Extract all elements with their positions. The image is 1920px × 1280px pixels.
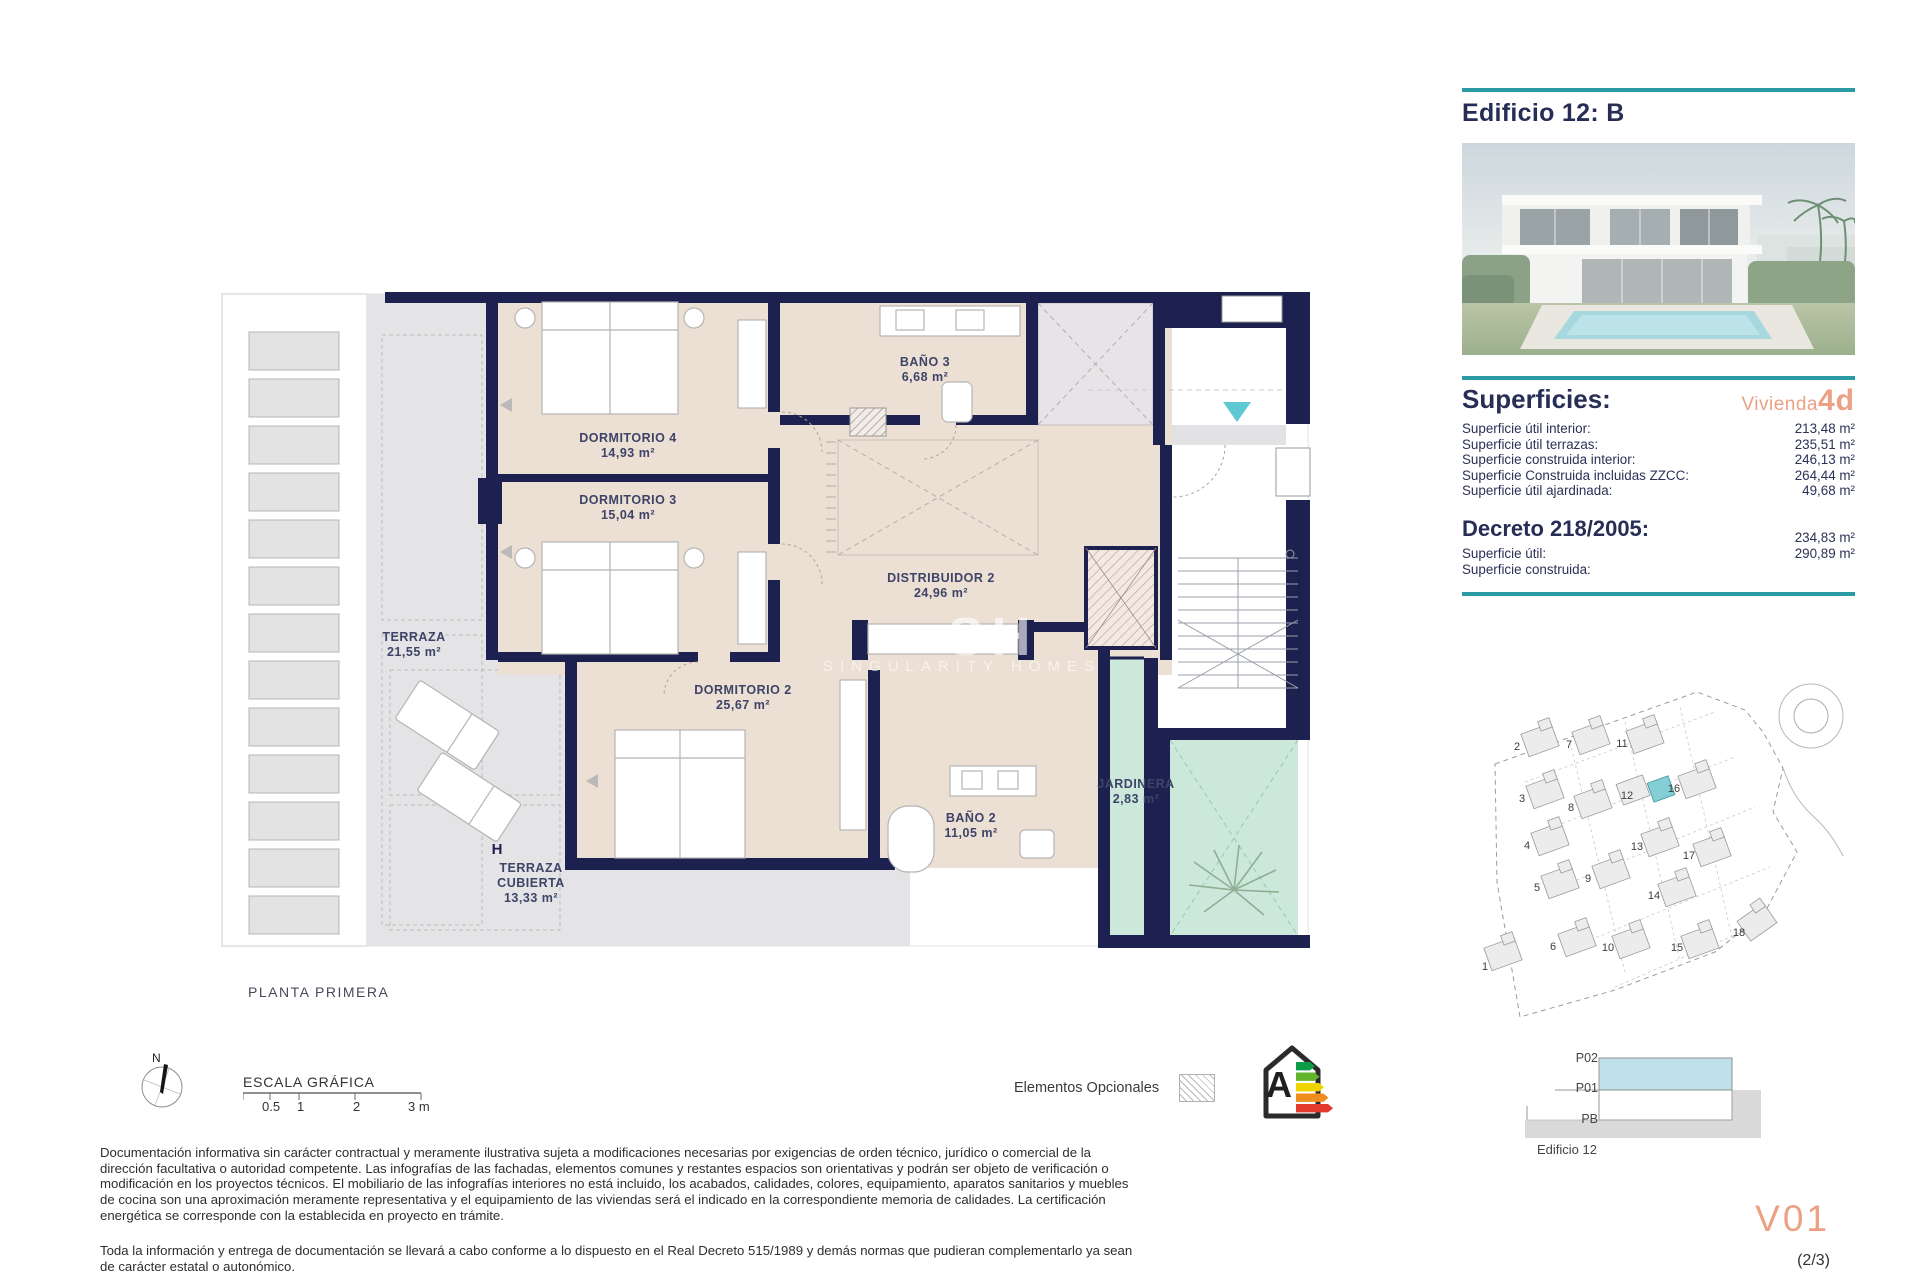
divider-top — [1462, 88, 1855, 92]
staircase — [1178, 550, 1298, 688]
room-label-distribuidor2: DISTRIBUIDOR 224,96 m² — [887, 571, 995, 601]
site-building-number: 11 — [1616, 738, 1627, 750]
section-caption: Edificio 12 — [1537, 1142, 1597, 1157]
scale-title: ESCALA GRÁFICA — [243, 1074, 375, 1090]
room-label-dormitorio4: DORMITORIO 414,93 m² — [579, 431, 676, 461]
site-plan-numbers: 123456789101112131415161718 — [1465, 672, 1875, 1032]
room-label-dormitorio3: DORMITORIO 315,04 m² — [579, 493, 676, 523]
version-label: V01 — [1680, 1198, 1830, 1240]
disclaimer-paragraph-1: Documentación informativa sin carácter c… — [100, 1145, 1145, 1223]
section-level-p02: P02 — [1556, 1051, 1598, 1065]
entry-arrow-icon — [1223, 402, 1251, 422]
site-building-number: 17 — [1683, 850, 1695, 862]
divider-siteplan — [1462, 592, 1855, 596]
room-label-jardinera: JARDINERA2,83 m² — [1097, 777, 1174, 807]
site-building-number: 1 — [1482, 961, 1488, 973]
optional-element-hatch — [850, 408, 886, 436]
watermark-name: SINGULARITY HOMES — [823, 658, 1101, 675]
table-row: Superficie útil ajardinada:49,68 m² — [1462, 483, 1855, 499]
north-label: N — [152, 1051, 161, 1065]
section-mark-h: H — [492, 841, 503, 858]
site-building-number: 15 — [1671, 942, 1683, 954]
elevator — [1086, 548, 1156, 648]
disclaimer-paragraph-2: Toda la información y entrega de documen… — [100, 1243, 1145, 1274]
site-building-number: 16 — [1668, 783, 1680, 795]
optional-elements-label: Elementos Opcionales — [1014, 1080, 1159, 1096]
scale-tick-05: 0.5 — [262, 1099, 280, 1114]
decreto-title: Decreto 218/2005: — [1462, 516, 1649, 542]
room-label-bano2: BAÑO 211,05 m² — [944, 811, 997, 841]
table-row: Superficie Construida incluidas ZZCC:264… — [1462, 468, 1855, 484]
divider-superficies — [1462, 376, 1855, 380]
site-building-number: 5 — [1534, 882, 1540, 894]
room-label-terraza-cubierta: TERRAZA CUBIERTA13,33 m² — [471, 861, 591, 906]
room-label-terraza: TERRAZA21,55 m² — [382, 630, 445, 660]
site-building-number: 14 — [1648, 890, 1660, 902]
site-building-number: 18 — [1733, 927, 1745, 939]
vivienda-code: 4d — [1818, 384, 1855, 417]
site-building-number: 12 — [1621, 790, 1633, 802]
site-building-number: 2 — [1514, 741, 1520, 753]
section-level-pb: PB — [1556, 1112, 1598, 1126]
table-row: Superficie útil terrazas:235,51 m² — [1462, 437, 1855, 453]
vivienda-label: Vivienda — [1741, 394, 1818, 415]
page-indicator: (2/3) — [1680, 1252, 1830, 1270]
plan-caption: PLANTA PRIMERA — [248, 984, 389, 1000]
building-render-image — [1462, 143, 1855, 355]
site-building-number: 7 — [1566, 739, 1572, 751]
scale-tick-2: 2 — [353, 1099, 360, 1114]
superficies-table: Superficie útil interior:213,48 m² Super… — [1462, 421, 1855, 499]
site-building-number: 6 — [1550, 941, 1556, 953]
scale-tick-1: 1 — [297, 1099, 304, 1114]
north-compass-icon — [133, 1050, 191, 1112]
site-building-number: 8 — [1568, 802, 1574, 814]
vivienda-tag: Vivienda4d — [1655, 384, 1855, 418]
decreto-values: 234,83 m² 290,89 m² — [1655, 530, 1855, 561]
decreto-labels: Superficie útil: Superficie construida: — [1462, 546, 1591, 577]
site-building-number: 3 — [1519, 793, 1525, 805]
superficies-title: Superficies: — [1462, 384, 1611, 415]
table-row: Superficie útil interior:213,48 m² — [1462, 421, 1855, 437]
table-row: Superficie construida interior:246,13 m² — [1462, 452, 1855, 468]
scale-tick-3m: 3 m — [408, 1099, 430, 1114]
energy-rating-letter: A — [1262, 1064, 1296, 1106]
section-level-p01: P01 — [1556, 1081, 1598, 1095]
site-building-number: 4 — [1524, 840, 1530, 852]
room-label-bano3: BAÑO 36,68 m² — [900, 355, 950, 385]
site-building-number: 10 — [1602, 942, 1614, 954]
optional-elements-swatch — [1179, 1074, 1215, 1102]
site-building-number: 13 — [1631, 841, 1643, 853]
building-title: Edificio 12: B — [1462, 99, 1625, 128]
site-building-number: 9 — [1585, 873, 1591, 885]
room-label-dormitorio2: DORMITORIO 225,67 m² — [694, 683, 791, 713]
